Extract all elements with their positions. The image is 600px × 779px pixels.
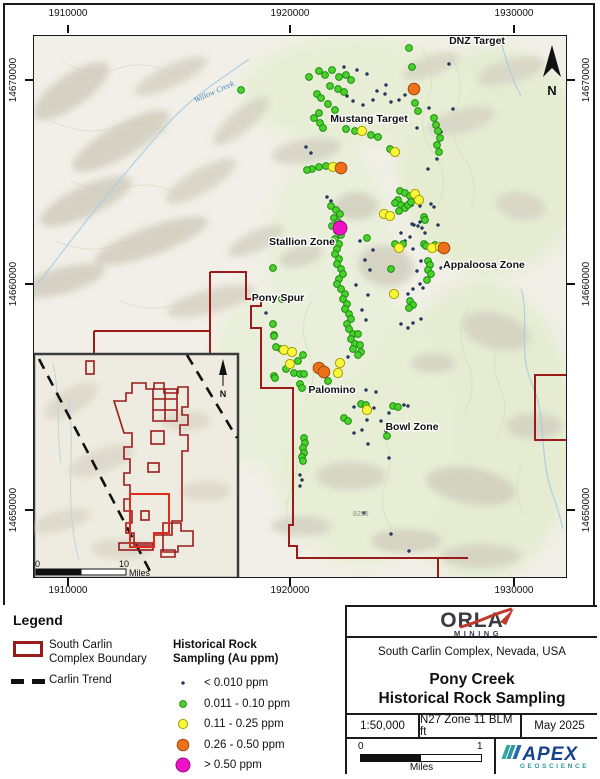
main-scalebar: 0 1 Miles — [347, 739, 496, 774]
zone-label: Bowl Zone — [385, 421, 438, 433]
inset-north-letter: N — [220, 389, 227, 399]
map-scale-value: 1:50,000 — [347, 715, 420, 737]
x-axis-label-top-3: 1930000 — [482, 8, 546, 19]
zone-label: Stallion Zone — [269, 236, 335, 248]
title-section: South Carlin Complex, Nevada, USA Pony C… — [347, 638, 597, 715]
sample-point-o — [408, 83, 420, 95]
sample-point-n — [361, 309, 364, 312]
sample-point-g — [325, 101, 332, 108]
sample-point-g — [368, 132, 375, 139]
sample-point-n — [384, 93, 387, 96]
sample-point-n — [347, 356, 350, 359]
sample-point-n — [424, 232, 427, 235]
sample-point-n — [388, 412, 391, 415]
sample-point-g — [412, 100, 419, 107]
sample-point-y — [394, 243, 403, 252]
x-axis-label-top-1: 1910000 — [36, 8, 100, 19]
inset-scalebar-start: 0 — [35, 559, 40, 569]
sample-point-n — [419, 283, 422, 286]
sample-point-g — [327, 83, 334, 90]
sample-point-n — [372, 249, 375, 252]
legend-category-label: 0.011 - 0.10 ppm — [204, 698, 290, 710]
sample-point-n — [380, 420, 383, 423]
sample-point-n — [419, 221, 422, 224]
sample-point-n — [433, 206, 436, 209]
x-axis-label-bottom-3: 1930000 — [482, 585, 546, 596]
sample-point-n — [437, 224, 440, 227]
sample-point-n — [299, 474, 302, 477]
sample-point-o — [438, 242, 450, 254]
sample-point-g — [396, 208, 403, 215]
sample-point-g — [422, 217, 429, 224]
legend-category-symbol — [173, 736, 193, 754]
map-figure-page: 1910000 1920000 1930000 1910000 1920000 … — [0, 0, 600, 779]
inset-scalebar-end: 10 — [119, 559, 129, 569]
sample-point-g — [318, 95, 325, 102]
sample-point-n — [448, 63, 451, 66]
sample-point-n — [452, 108, 455, 111]
north-arrow-letter: N — [547, 83, 556, 98]
sample-point-n — [353, 406, 356, 409]
sample-point-g — [409, 64, 416, 71]
carlin-trend-swatch — [11, 679, 45, 684]
sampling-categories: < 0.010 ppm0.011 - 0.10 ppm0.11 - 0.25 p… — [173, 673, 290, 776]
sample-point-g — [301, 371, 308, 378]
sample-point-n — [416, 270, 419, 273]
sample-point-g — [270, 265, 277, 272]
sample-point-n — [398, 99, 401, 102]
elevation-label: 8295 — [353, 511, 369, 518]
sample-point-n — [427, 168, 430, 171]
sample-point-n — [343, 66, 346, 69]
creek-label: Willow Creek — [192, 79, 235, 105]
axis-tick — [289, 25, 291, 33]
sample-point-m — [333, 221, 347, 235]
legend-category-row: < 0.010 ppm — [173, 673, 290, 694]
sample-point-y — [335, 358, 344, 367]
bottom-row: 0 1 Miles APEX GEOSCIENCE — [347, 739, 597, 774]
sample-point-n — [310, 152, 313, 155]
axis-tick — [67, 25, 69, 33]
axis-tick — [67, 578, 69, 586]
sample-point-n — [416, 127, 419, 130]
sample-point-g — [306, 74, 313, 81]
sample-point-g — [395, 404, 402, 411]
sample-point-g — [238, 87, 245, 94]
sample-point-n — [367, 443, 370, 446]
main-map: DNZ TargetMustang TargetStallion ZoneApp… — [33, 35, 567, 578]
sample-point-g — [364, 235, 371, 242]
sample-point-n — [412, 248, 415, 251]
sample-point-n — [365, 319, 368, 322]
sample-point-n — [367, 294, 370, 297]
legend-category-symbol — [173, 715, 193, 733]
inset-scalebar-unit: Miles — [129, 568, 151, 578]
legend-category-label: > 0.50 ppm — [204, 759, 262, 771]
sample-point-g — [355, 352, 362, 359]
zone-label: Palomino — [308, 384, 355, 396]
sampling-legend-title: Historical Rock Sampling (Au ppm) — [173, 638, 278, 666]
sample-point-n — [412, 322, 415, 325]
sample-point-n — [430, 203, 433, 206]
sample-point-g — [300, 352, 307, 359]
sample-point-n — [407, 293, 410, 296]
scalebar-white-segment — [420, 754, 482, 762]
legend-category-row: 0.26 - 0.50 ppm — [173, 735, 290, 756]
sample-point-y — [385, 211, 394, 220]
map-projection: N27 Zone 11 BLM ft — [420, 715, 522, 737]
boundary-label: South Carlin Complex Boundary — [49, 638, 147, 666]
sample-point-n — [366, 419, 369, 422]
y-axis-label-left-2: 14660000 — [8, 252, 19, 316]
axis-tick — [567, 283, 575, 285]
sample-point-y — [414, 195, 423, 204]
legend-category-label: 0.26 - 0.50 ppm — [204, 739, 285, 751]
axis-tick — [289, 578, 291, 586]
legend-category-row: > 0.50 ppm — [173, 755, 290, 776]
axis-tick — [25, 79, 33, 81]
sample-point-n — [388, 457, 391, 460]
sample-point-n — [265, 312, 268, 315]
apex-bars-icon — [504, 745, 521, 764]
sample-point-g — [295, 358, 302, 365]
sample-point-n — [352, 100, 355, 103]
apex-logo-text: APEX — [522, 744, 578, 765]
scalebar-unit: Miles — [347, 762, 496, 773]
sample-point-n — [407, 327, 410, 330]
sample-point-n — [301, 479, 304, 482]
title-block: ORLA MINING South Carlin Complex, Nevada… — [347, 607, 597, 774]
sample-point-n — [408, 550, 411, 553]
sample-point-g — [350, 346, 357, 353]
axis-tick — [513, 25, 515, 33]
sample-point-g — [375, 134, 382, 141]
legend-category-symbol — [173, 695, 193, 713]
sample-point-g — [300, 458, 307, 465]
x-axis-label-bottom-2: 1920000 — [258, 585, 322, 596]
legend-category-label: 0.11 - 0.25 ppm — [204, 718, 284, 730]
sample-point-g — [357, 342, 364, 349]
sample-point-n — [326, 196, 329, 199]
axis-tick — [567, 509, 575, 511]
sample-point-g — [355, 331, 362, 338]
legend-category-label: < 0.010 ppm — [204, 677, 268, 689]
sample-point-o — [318, 366, 330, 378]
carlin-trend-label: Carlin Trend — [49, 674, 112, 686]
legend-category-symbol — [173, 674, 193, 692]
sample-point-g — [322, 72, 329, 79]
legend-panel: Legend South Carlin Complex Boundary Car… — [3, 605, 345, 774]
sample-point-g — [406, 45, 413, 52]
sample-point-g — [388, 266, 395, 273]
sample-point-n — [376, 90, 379, 93]
sample-point-g — [320, 125, 327, 132]
sample-point-n — [375, 391, 378, 394]
apex-logo-subtext: GEOSCIENCE — [520, 763, 589, 770]
sample-point-n — [359, 240, 362, 243]
sample-point-n — [403, 404, 406, 407]
sample-point-n — [400, 323, 403, 326]
y-axis-label-right-2: 14660000 — [581, 252, 592, 316]
sample-point-g — [311, 115, 318, 122]
axis-tick — [25, 283, 33, 285]
sample-point-n — [421, 227, 424, 230]
sample-point-n — [440, 267, 443, 270]
sample-point-g — [273, 344, 280, 351]
sample-point-n — [364, 259, 367, 262]
sample-point-n — [355, 284, 358, 287]
axis-tick — [25, 509, 33, 511]
sample-point-g — [408, 199, 415, 206]
sample-point-n — [428, 107, 431, 110]
sample-point-y — [285, 359, 294, 368]
sample-point-n — [417, 225, 420, 228]
sample-point-n — [372, 99, 375, 102]
sample-point-g — [437, 135, 444, 142]
legend-category-symbol — [173, 756, 193, 774]
y-axis-label-left-3: 14650000 — [8, 478, 19, 542]
sample-point-g — [272, 375, 279, 382]
sample-point-g — [424, 277, 431, 284]
map-info-row: 1:50,000 N27 Zone 11 BLM ft May 2025 — [347, 715, 597, 739]
sample-point-n — [412, 288, 415, 291]
sample-point-g — [304, 167, 311, 174]
sample-point-n — [420, 260, 423, 263]
sample-point-n — [362, 104, 365, 107]
sample-point-n — [305, 146, 308, 149]
sample-point-g — [341, 89, 348, 96]
region-subtitle: South Carlin Complex, Nevada, USA — [347, 646, 597, 658]
legend-title: Legend — [13, 612, 63, 628]
sample-point-y — [287, 347, 296, 356]
zone-label: DNZ Target — [449, 36, 505, 47]
map-title: Pony Creek Historical Rock Sampling — [347, 670, 597, 708]
sample-point-n — [365, 389, 368, 392]
sample-point-g — [270, 321, 277, 328]
sample-point-y — [333, 368, 342, 377]
sample-point-y — [390, 147, 399, 156]
zone-label: Mustang Target — [330, 113, 408, 125]
x-axis-label-top-2: 1920000 — [258, 8, 322, 19]
apex-logo: APEX GEOSCIENCE — [496, 739, 597, 774]
sample-point-g — [316, 68, 323, 75]
sample-point-n — [373, 407, 376, 410]
legend-category-row: 0.011 - 0.10 ppm — [173, 694, 290, 715]
sample-point-n — [422, 287, 425, 290]
sample-point-n — [400, 232, 403, 235]
zone-label: Appaloosa Zone — [443, 259, 525, 271]
sample-point-y — [357, 126, 366, 135]
y-axis-label-right-3: 14650000 — [581, 478, 592, 542]
sample-point-n — [353, 432, 356, 435]
scalebar-start: 0 — [358, 741, 364, 752]
zone-label: Pony Spur — [252, 292, 305, 304]
sample-point-n — [420, 318, 423, 321]
sample-point-n — [299, 485, 302, 488]
boundary-swatch — [13, 641, 43, 657]
inset-map: N 0 10 Miles — [34, 354, 238, 578]
sample-point-y — [389, 289, 398, 298]
sample-point-n — [411, 223, 414, 226]
sample-point-g — [436, 149, 443, 156]
sample-point-g — [337, 211, 344, 218]
sample-point-g — [329, 67, 336, 74]
orla-logo-subtext: MINING — [452, 629, 504, 638]
sample-point-n — [369, 269, 372, 272]
axis-tick — [567, 79, 575, 81]
map-date: May 2025 — [522, 715, 597, 737]
sample-point-n — [390, 101, 393, 104]
sample-point-o — [335, 162, 347, 174]
x-axis-label-bottom-1: 1910000 — [36, 585, 100, 596]
orla-logo: ORLA MINING — [347, 607, 597, 638]
sample-point-n — [407, 405, 410, 408]
sample-point-n — [366, 73, 369, 76]
sample-point-n — [356, 69, 359, 72]
legend-category-row: 0.11 - 0.25 ppm — [173, 714, 290, 735]
sample-point-n — [330, 200, 333, 203]
sample-point-g — [343, 126, 350, 133]
sample-point-g — [348, 77, 355, 84]
sample-point-n — [436, 158, 439, 161]
sample-point-n — [385, 84, 388, 87]
sample-point-g — [406, 305, 413, 312]
axis-tick — [513, 578, 515, 586]
sample-point-g — [431, 115, 438, 122]
sample-point-y — [362, 405, 371, 414]
sample-point-g — [384, 433, 391, 440]
sample-point-g — [316, 164, 323, 171]
sample-point-g — [428, 271, 435, 278]
sample-point-n — [409, 236, 412, 239]
sample-point-g — [299, 385, 306, 392]
scalebar-black-segment — [360, 754, 422, 762]
sample-point-n — [404, 94, 407, 97]
y-axis-label-right-1: 14670000 — [581, 48, 592, 112]
sample-point-n — [361, 429, 364, 432]
map-canvas: DNZ TargetMustang TargetStallion ZoneApp… — [34, 36, 567, 578]
sample-point-g — [415, 108, 422, 115]
sample-point-g — [336, 74, 343, 81]
scalebar-end: 1 — [477, 741, 483, 752]
y-axis-label-left-1: 14670000 — [8, 48, 19, 112]
sample-point-g — [435, 128, 442, 135]
sample-point-n — [390, 533, 393, 536]
sample-point-g — [345, 418, 352, 425]
sample-point-g — [434, 142, 441, 149]
sample-point-g — [271, 333, 278, 340]
